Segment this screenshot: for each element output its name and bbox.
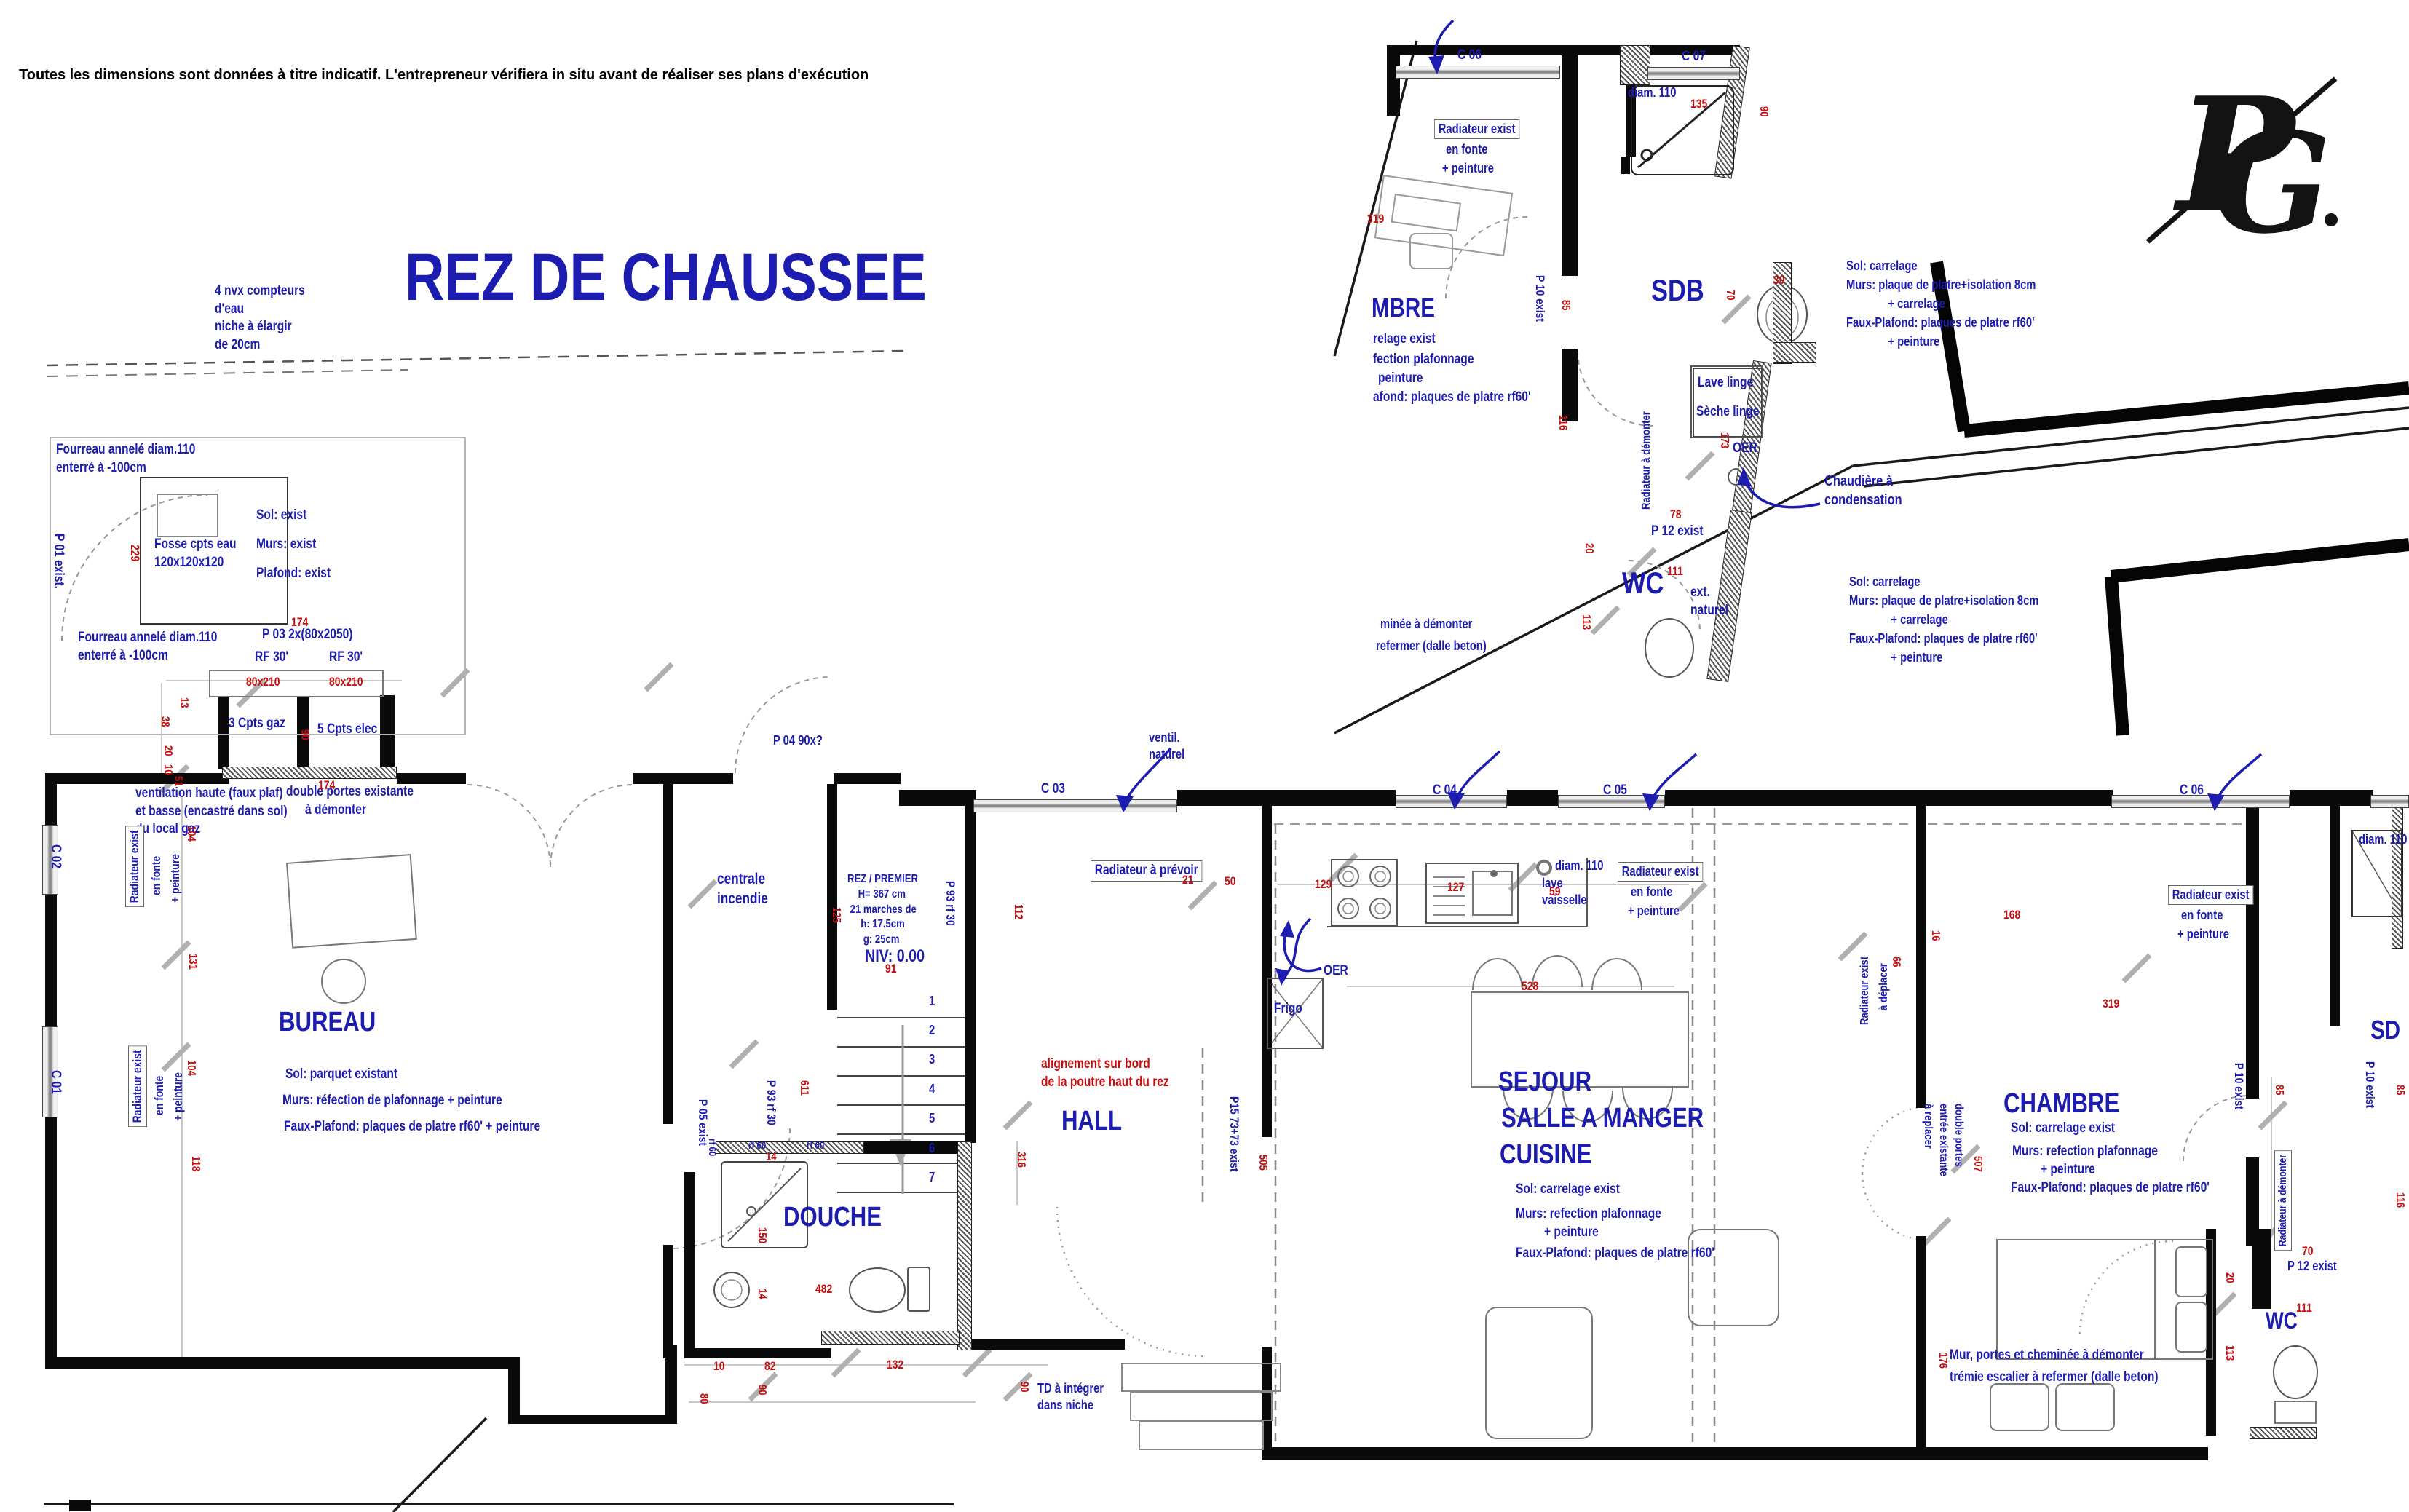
label-peinture: + peinture — [167, 854, 183, 903]
label-90: 90 — [753, 1385, 769, 1396]
label-en-fonte: en fonte — [149, 856, 165, 895]
label-129: 129 — [1315, 876, 1332, 892]
floorplan-sheet: PG Toutes les dimensions sont données à … — [0, 0, 2409, 1512]
label-en-fonte: en fonte — [1446, 141, 1487, 158]
room-bureau: BUREAU — [279, 1005, 376, 1040]
label-173: 173 — [1716, 432, 1731, 448]
label-319: 319 — [2103, 996, 2119, 1012]
label-2: 2 — [929, 1022, 935, 1039]
label-113: 113 — [1578, 614, 1593, 630]
label-507: 507 — [1969, 1156, 1985, 1172]
label-s-che-linge: Sèche linge — [1696, 403, 1760, 421]
label-faux-plafond-plaques-de-plat: Faux-Plafond: plaques de platre rf60' + … — [284, 1118, 540, 1136]
label-diam-110: diam. 110 — [1555, 858, 1603, 874]
label-21: 21 — [1182, 872, 1194, 888]
label-7: 7 — [929, 1169, 935, 1186]
label-80x210: 80x210 — [329, 674, 363, 690]
label-20: 20 — [2221, 1272, 2236, 1283]
label-70: 70 — [1722, 290, 1737, 301]
label-p-10-exist: P 10 exist — [1532, 275, 1548, 322]
label-sol-carrelage-murs-plaque-de: Sol: carrelage Murs: plaque de platre+is… — [1849, 572, 2038, 667]
label-d-placer: à déplacer — [1877, 963, 1892, 1010]
label-rf-30: RF 30' — [255, 649, 288, 667]
label-p-03-2x-80x2050: P 03 2x(80x2050) — [262, 626, 352, 644]
label-radiateur-exist: Radiateur exist — [1858, 957, 1873, 1025]
label-radiateur-exist: Radiateur exist — [128, 1046, 147, 1127]
label-10: 10 — [159, 764, 175, 775]
label-127: 127 — [1447, 879, 1464, 895]
label-p-93-rf-30: P 93 rf 30 — [763, 1080, 779, 1125]
label-116: 116 — [2392, 1192, 2407, 1208]
label-p-10-exist: P 10 exist — [2231, 1063, 2247, 1109]
label-rf-60: rf 60 — [748, 1139, 766, 1152]
label-td-int-grer-dans-niche: TD à intégrer dans niche — [1037, 1380, 1104, 1414]
label-p-12-exist: P 12 exist — [1651, 523, 1704, 541]
label-70: 70 — [2302, 1243, 2314, 1259]
room-wc-br: WC — [2266, 1306, 2298, 1337]
label-50: 50 — [1225, 874, 1236, 890]
label-rf-60: rf 60 — [807, 1139, 824, 1152]
label-10: 10 — [713, 1358, 725, 1374]
label-ventil-naturel: ventil. naturel — [1149, 729, 1184, 764]
label-cuisine: CUISINE — [1500, 1137, 1591, 1173]
label-16: 16 — [1927, 930, 1942, 941]
label-90: 90 — [1016, 1382, 1031, 1393]
label-319: 319 — [1367, 211, 1384, 227]
label-relage-exist: relage exist — [1373, 330, 1436, 349]
label-p-04-90x: P 04 90x? — [773, 732, 823, 749]
label-radiateur-exist: Radiateur exist — [1618, 862, 1703, 882]
label-fourreau-annel-diam-110-ente: Fourreau annelé diam.110 enterré à -100c… — [78, 629, 217, 665]
room-wc-top: WC — [1622, 563, 1664, 603]
label-radiateur-d-monter: Radiateur à démonter — [1639, 411, 1655, 510]
label-rez-premier-h-367-cm-21-marc: REZ / PREMIER H= 367 cm 21 marches de h:… — [847, 872, 918, 948]
room-douche: DOUCHE — [783, 1200, 882, 1235]
label-c-01: C 01 — [46, 1070, 64, 1094]
label-174: 174 — [318, 777, 335, 793]
label-centrale-incendie: centrale incendie — [717, 869, 768, 909]
label-90: 90 — [1755, 106, 1771, 117]
label-528: 528 — [1522, 978, 1538, 994]
label-sol-carrelage-exist: Sol: carrelage exist — [2011, 1120, 2115, 1138]
label-78: 78 — [1670, 507, 1682, 523]
svg-text:G: G — [2213, 102, 2331, 264]
label-oer: OER — [1733, 440, 1757, 458]
room-hall: HALL — [1061, 1104, 1122, 1139]
label-112: 112 — [1010, 904, 1025, 919]
label-ext-naturel: ext. naturel — [1690, 584, 1728, 620]
label-peinture: + peinture — [1442, 160, 1494, 177]
label-peinture: + peinture — [2177, 926, 2229, 943]
label-p-93-rf-30: P 93 rf 30 — [942, 881, 958, 926]
label-faux-plafond-plaques-de-plat: Faux-Plafond: plaques de platre rf60' — [2011, 1179, 2210, 1198]
label-diam-110: diam. 110 — [1628, 84, 1676, 101]
label-c-06: C 06 — [2180, 782, 2204, 800]
label-176: 176 — [1934, 1353, 1950, 1369]
label-en-fonte: en fonte — [151, 1076, 167, 1115]
label-radiateur-exist: Radiateur exist — [1434, 119, 1519, 139]
label-murs-refection-plafonnage-pe: Murs: refection plafonnage + peinture — [2012, 1143, 2158, 1179]
label-diam-110: diam. 110 — [2359, 831, 2407, 848]
label-14: 14 — [766, 1150, 777, 1165]
label-radiateur-exist: Radiateur exist — [125, 826, 144, 907]
label-frigo: Frigo — [1274, 1000, 1302, 1018]
room-sejour: SEJOUR — [1498, 1064, 1591, 1100]
label-59: 59 — [1549, 884, 1561, 900]
label-91: 91 — [885, 961, 897, 977]
label-3: 3 — [929, 1051, 935, 1068]
label-80: 80 — [695, 1393, 711, 1404]
label-66: 66 — [1888, 957, 1903, 967]
label-6: 6 — [929, 1140, 935, 1157]
label-c-05: C 05 — [1603, 782, 1627, 800]
label-refermer-dalle-beton: refermer (dalle beton) — [1376, 638, 1487, 654]
label-en-fonte: en fonte — [2181, 907, 2223, 924]
label-fosse-cpts-eau-120x120x120: Fosse cpts eau 120x120x120 — [154, 536, 237, 571]
label-p-01-exist: P 01 exist. — [49, 534, 67, 589]
room-chambre-top: MBRE — [1372, 291, 1435, 325]
label-85: 85 — [2392, 1085, 2407, 1096]
label-rf-60: rf 60 — [706, 1139, 719, 1156]
label-mur-portes-et-chemin-e-d-mon: Mur, portes et cheminée à démonter — [1950, 1347, 2144, 1365]
label-sol-carrelage-exist: Sol: carrelage exist — [1516, 1181, 1620, 1199]
sheet-title: REZ DE CHAUSSEE — [405, 234, 927, 322]
label-168: 168 — [2003, 907, 2020, 923]
label-132: 132 — [887, 1357, 903, 1373]
label-rf-30: RF 30' — [329, 649, 363, 667]
label-20: 20 — [1581, 543, 1596, 554]
label-c-06: C 06 — [1457, 47, 1482, 65]
label-14: 14 — [753, 1289, 769, 1299]
label-90: 90 — [296, 729, 312, 740]
label-c-03: C 03 — [1041, 780, 1065, 799]
label-double-portes-existante-d-mo: double portes existante à démonter — [286, 783, 414, 819]
label-482: 482 — [815, 1281, 832, 1297]
label-alignement-sur-bord-de-la-po: alignement sur bord de la poutre haut du… — [1041, 1056, 1169, 1091]
label-c-02: C 02 — [46, 844, 64, 868]
label-505: 505 — [1254, 1155, 1270, 1171]
label-131: 131 — [184, 954, 199, 970]
label-5-cpts-elec: 5 Cpts elec — [317, 721, 377, 739]
label-104: 104 — [183, 1060, 198, 1076]
label-229: 229 — [127, 545, 143, 561]
label-111: 111 — [1667, 563, 1683, 579]
label-80x210: 80x210 — [246, 674, 280, 690]
label-murs-r-fection-de-plafonnage: Murs: réfection de plafonnage + peinture — [282, 1092, 502, 1110]
disclaimer: Toutes les dimensions sont données à tit… — [19, 66, 869, 84]
label-135: 135 — [1690, 96, 1707, 112]
label-1: 1 — [929, 993, 935, 1010]
label-82: 82 — [764, 1358, 776, 1374]
label-3-cpts-gaz: 3 Cpts gaz — [229, 715, 285, 733]
label-c-04: C 04 — [1433, 782, 1457, 800]
label-150: 150 — [753, 1227, 769, 1243]
label-113: 113 — [2221, 1345, 2236, 1361]
label-peinture: + peinture — [1628, 903, 1680, 919]
label-fection-plafonnage: fection plafonnage — [1373, 351, 1474, 369]
label-en-fonte: en fonte — [1631, 884, 1672, 901]
label-faux-plafond-plaques-de-plat: Faux-Plafond: plaques de platre rf60' — [1516, 1245, 1714, 1263]
label-double-portes-entr-e-existan: double portes entrée existante à replace… — [1921, 1104, 1966, 1176]
label-murs-refection-plafonnage-pe: Murs: refection plafonnage + peinture — [1516, 1206, 1661, 1241]
label-13: 13 — [175, 697, 191, 708]
label-4: 4 — [929, 1081, 935, 1098]
plan-annotations-linework: PG — [0, 0, 2409, 1512]
label-c-07: C 07 — [1682, 48, 1706, 66]
label-316: 316 — [1013, 1152, 1028, 1168]
label-chaudi-re-condensation: Chaudière à condensation — [1824, 472, 1902, 510]
label-sol-exist-murs-exist-plafond: Sol: exist Murs: exist Plafond: exist — [256, 508, 331, 581]
label-5: 5 — [929, 1110, 935, 1127]
label-tr-mie-escalier-refermer-dal: trémie escalier à refermer (dalle beton) — [1950, 1369, 2159, 1387]
label-salle-a-manger: SALLE A MANGER — [1501, 1101, 1704, 1136]
label-afond-plaques-de-platre-rf60: afond: plaques de platre rf60' — [1373, 389, 1531, 407]
room-chambre: CHAMBRE — [2003, 1086, 2119, 1122]
label-p15-73-73-exist: P15 73+73 exist — [1226, 1096, 1242, 1171]
label-125: 125 — [828, 907, 843, 923]
label-min-e-d-monter: minée à démonter — [1380, 616, 1472, 633]
label-20: 20 — [159, 745, 175, 756]
room-sdb: SDB — [1651, 271, 1704, 311]
label-radiateur-exist: Radiateur exist — [2168, 885, 2253, 905]
label-116: 116 — [1554, 415, 1570, 430]
label-p-12-exist: P 12 exist — [2287, 1258, 2337, 1275]
label-ventilation-haute-faux-plaf-: ventilation haute (faux plaf) et basse (… — [135, 785, 288, 839]
label-sol-parquet-existant: Sol: parquet existant — [285, 1066, 397, 1084]
label-sol-carrelage-murs-plaque-de: Sol: carrelage Murs: plaque de platre+is… — [1846, 256, 2036, 351]
label-104: 104 — [183, 826, 198, 842]
label-118: 118 — [187, 1156, 202, 1171]
label-peinture: peinture — [1378, 370, 1423, 388]
label-p-10-exist: P 10 exist — [2362, 1061, 2378, 1108]
label-lave-linge: Lave linge — [1698, 374, 1753, 392]
room-sd: SD — [2370, 1013, 2400, 1048]
label-85: 85 — [2271, 1085, 2286, 1096]
label-38: 38 — [157, 716, 172, 727]
label-30: 30 — [1773, 272, 1785, 288]
label-radiateur-d-monter: Radiateur à démonter — [2274, 1150, 2292, 1251]
label-oer: OER — [1324, 962, 1348, 981]
label-611: 611 — [796, 1080, 811, 1096]
label-4-nvx-compteurs-d-eau-niche-: 4 nvx compteurs d'eau niche à élargir de… — [215, 282, 305, 355]
label-111: 111 — [2296, 1300, 2312, 1316]
label-85: 85 — [1557, 300, 1573, 311]
label-fourreau-annel-diam-110-ente: Fourreau annelé diam.110 enterré à -100c… — [56, 441, 195, 477]
label-peinture: + peinture — [170, 1072, 186, 1121]
